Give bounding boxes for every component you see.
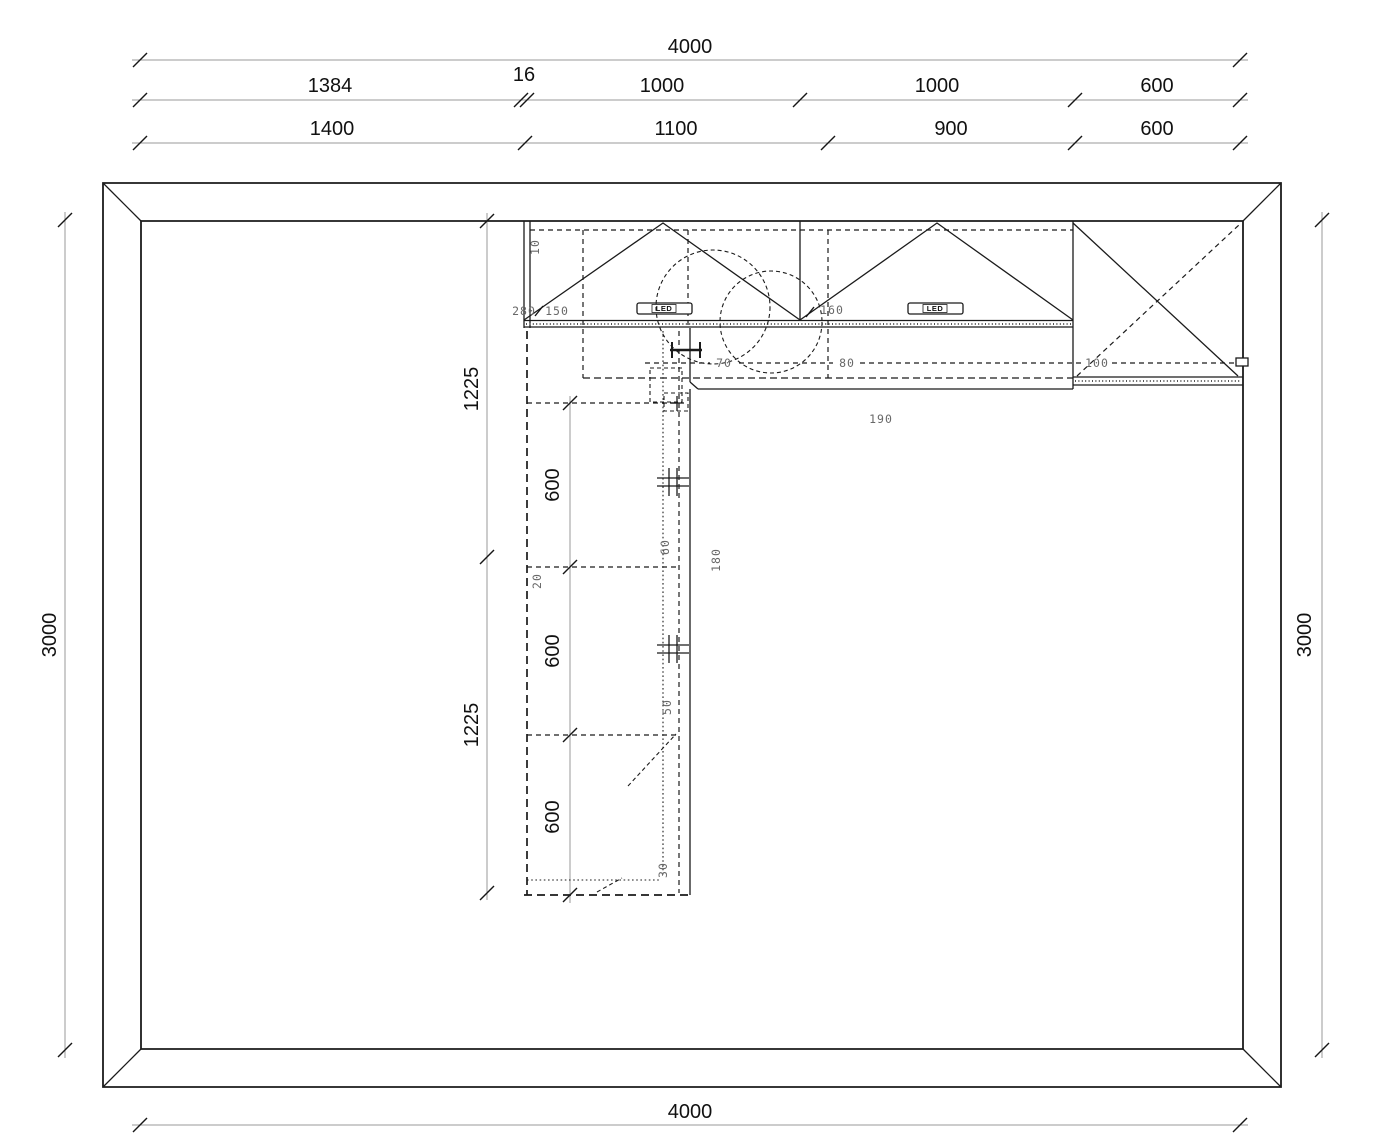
tall-cabinet-diagonal-hidden [1077,224,1240,376]
counter-corner-chamfer [690,382,698,389]
door-swing-hidden [597,878,622,892]
upper-wall-cabinets: LED LED [524,221,1073,389]
dim-value: 1000 [640,75,685,97]
detail-label-30: 30 [656,862,670,878]
hinge-symbol [657,468,689,496]
dim-left-total: 3000 [39,212,72,1058]
dim-bottom-total: 4000 [132,1101,1248,1132]
dim-gap-label: 20 [530,573,544,589]
wall-miter-bottom-right [1243,1049,1281,1087]
dim-value-left-total: 3000 [39,613,61,658]
detail-label-160: 160 [820,303,844,317]
detail-label-100: 100 [1085,356,1109,370]
detail-label-60: 60 [658,539,672,555]
detail-label-150: 150 [545,304,569,318]
sink-bowl-circle [720,271,822,373]
dim-value: 1400 [310,118,355,140]
led-label: LED [927,304,944,313]
tap-symbol [670,342,702,358]
dim-cabinet-run: 600 600 600 20 [530,396,577,903]
dim-value-top-total: 4000 [668,36,713,58]
tall-cabinet-diagonal [1073,223,1238,376]
wall-outer [103,183,1281,1087]
room-walls [103,183,1281,1087]
detail-label-80: 80 [839,356,855,370]
led-strip-1: LED [637,303,692,314]
dim-value-bottom-total: 4000 [668,1101,713,1123]
hinge-symbol [657,635,689,663]
wall-connection-stub [1236,358,1248,366]
dim-value: 600 [542,634,564,667]
detail-label-280: 280 [512,304,536,318]
wall-miter-top-left [103,183,141,221]
detail-label-10: 10 [528,239,542,255]
dim-inner-left: 1225 1225 [461,213,494,900]
drawing-canvas: 4000 1384 16 1000 1000 600 1400 1100 900… [0,0,1400,1140]
dim-value: 600 [1140,75,1173,97]
dim-value: 600 [1140,118,1173,140]
detail-label-70: 70 [716,356,732,370]
dim-value: 1225 [461,367,483,412]
dim-value: 16 [513,64,535,86]
dim-value-right-total: 3000 [1294,613,1316,658]
led-label: LED [656,304,673,313]
detail-label-50: 50 [660,699,674,715]
dim-right-total: 3000 [1294,212,1329,1058]
wall-miter-bottom-left [103,1049,141,1087]
dim-value: 900 [934,118,967,140]
detail-label-190: 190 [869,412,893,426]
dim-value: 1000 [915,75,960,97]
countertop [583,328,1236,389]
dim-value: 600 [542,468,564,501]
detail-labels: 10 280 150 160 70 80 100 190 180 60 50 3… [512,239,1109,878]
dim-value: 1384 [308,75,353,97]
dim-value: 1100 [654,118,697,140]
led-strip-2: LED [908,303,963,314]
floor-plan-svg: 4000 1384 16 1000 1000 600 1400 1100 900… [0,0,1400,1140]
dim-top-chain-a: 1384 16 1000 1000 600 [132,64,1248,107]
wall-miter-top-right [1243,183,1281,221]
dim-value: 1225 [461,703,483,748]
dim-top-total: 4000 [132,36,1248,67]
door-swing-hidden [628,734,676,786]
dim-top-chain-b: 1400 1100 900 600 [132,118,1248,150]
dim-tick-small [806,307,814,317]
detail-label-180: 180 [709,548,723,572]
wall-inner [141,221,1243,1049]
dim-value: 600 [542,800,564,833]
